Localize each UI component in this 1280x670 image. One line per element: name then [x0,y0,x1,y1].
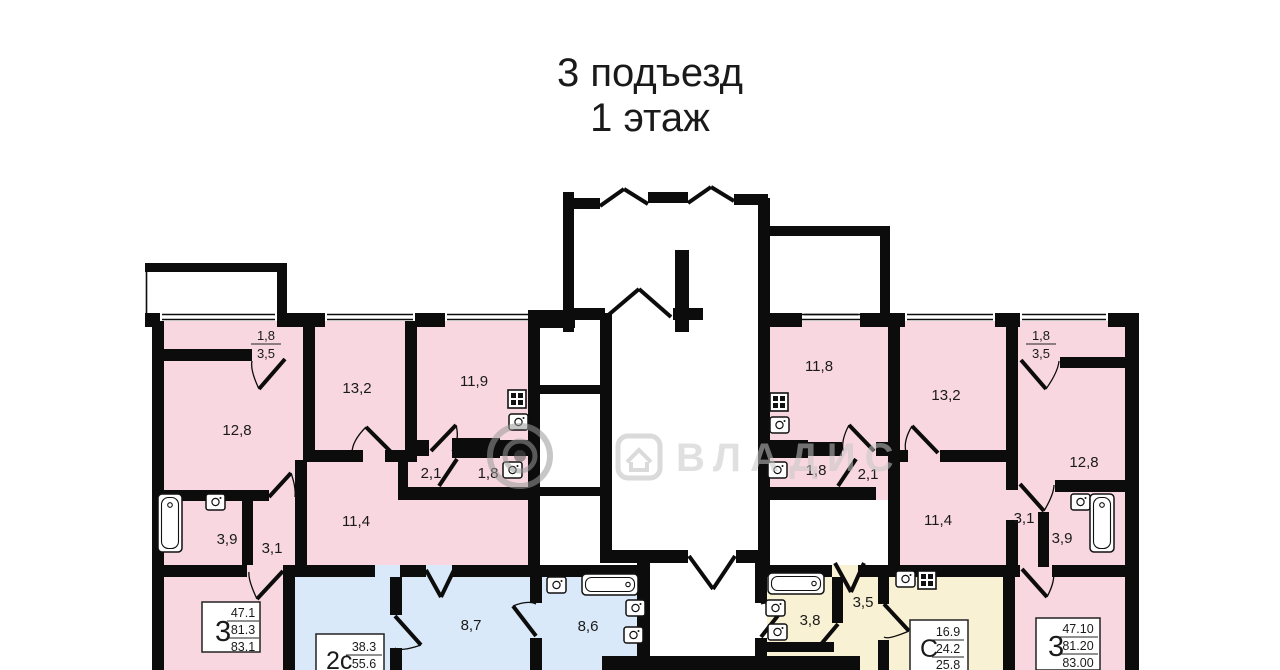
sink-icon [1071,494,1090,510]
room-area-label: 1,8 [1032,328,1050,343]
room-area-label: 3,5 [1032,346,1050,361]
area-value: 81.20 [1062,639,1093,653]
room-area-label: 2,1 [421,465,442,482]
room-area-label: 3,5 [853,594,874,611]
area-value: 83.1 [231,640,255,654]
room-area-label: 11,9 [460,373,488,390]
apartment-info-box: 2с 38.3 55.6 [316,634,384,670]
room-area-label: 12,8 [1069,454,1098,471]
room-area-label: 13,2 [931,387,960,404]
room-area-label: 3,8 [800,612,821,629]
room-area-label: 3,9 [1052,530,1073,547]
area-value: 83.00 [1062,656,1093,670]
stove-icon [770,393,788,411]
house-logo-icon [618,436,660,478]
sink-icon [547,577,566,593]
apartment-info-box: С 16.9 24.2 25.8 [910,620,968,670]
bathtub-icon [1090,494,1114,552]
apartment-info-box: 3 47.1 81.3 83.1 [202,602,260,654]
entrance-title: 3 подъезд [557,51,743,95]
room-area-label: 11,4 [924,512,952,529]
room-area-label: 3,9 [217,531,238,548]
room-area-label: 8,7 [461,617,482,634]
area-value: 24.2 [936,642,960,656]
sink-icon [896,571,915,587]
room-area-label: 8,6 [578,618,599,635]
sink-icon [624,627,643,643]
common-hall-right [770,500,888,565]
room-area-label: 1,8 [257,328,275,343]
windows [147,263,1107,320]
area-value: 25.8 [936,658,960,670]
bathtub-icon [768,573,824,594]
room-area-label: 3,5 [257,346,275,361]
area-value: 55.6 [352,657,376,670]
sink-icon [766,600,785,616]
room-area-label: 12,8 [222,422,251,439]
room-area-label: 3,1 [262,540,283,557]
stove-icon [918,571,936,589]
room-area-label: 13,2 [342,380,371,397]
area-value: 47.1 [231,606,255,620]
apartment-info-box: 3 47.10 81.20 83.00 [1036,618,1100,670]
area-value: 81.3 [231,623,255,637]
stove-icon [508,390,526,408]
sink-icon [770,417,789,433]
plan-title: 3 подъезд 1 этаж [557,51,743,140]
floor-title: 1 этаж [590,96,710,140]
sink-icon [206,494,225,510]
room-area-label: 11,8 [805,358,833,375]
area-value: 38.3 [352,640,376,654]
watermark-text: ВЛАДИС [676,436,902,480]
apartment-type-label: 2с [326,647,352,670]
area-value: 47.10 [1062,622,1093,636]
bathtub-icon [582,574,638,595]
floor-plan: 3 подъезд 1 этаж [0,0,1280,670]
area-value: 16.9 [936,625,960,639]
sink-icon [768,624,787,640]
sink-icon [626,600,645,616]
bathtub-icon [158,494,182,552]
room-area-label: 11,4 [342,513,370,530]
room-area-label: 3,1 [1014,510,1035,527]
